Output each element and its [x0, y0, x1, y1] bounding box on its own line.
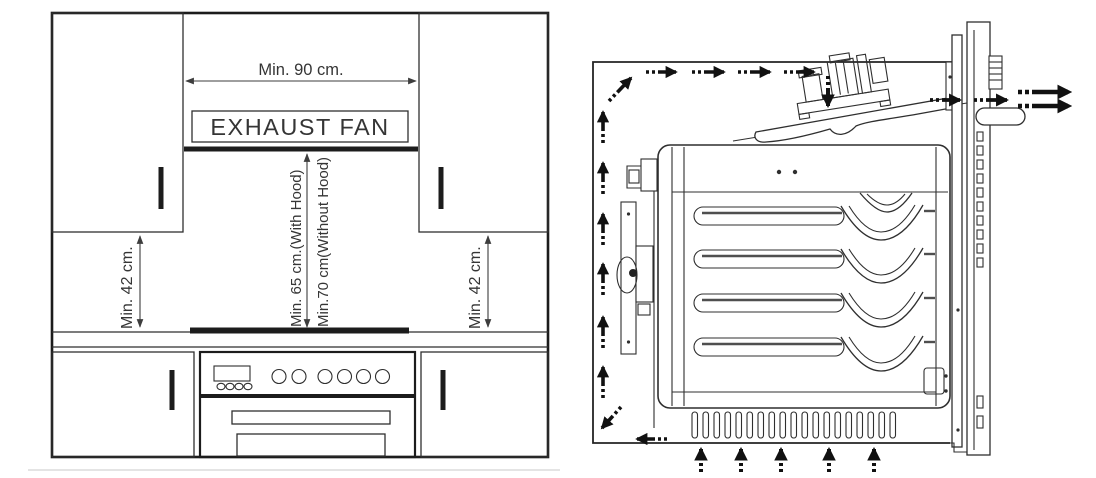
clearance-dimension-left: Min. 42 cm.: [119, 236, 140, 329]
oven-window: [237, 434, 385, 456]
oven-handle: [232, 411, 390, 424]
oven-airflow-diagram: [593, 22, 1070, 472]
clearance-dimension-right: Min. 42 cm.: [467, 236, 488, 329]
base-cabinet-left: [52, 352, 194, 457]
screw-dot-icon: [944, 374, 947, 377]
range-cooker: [200, 352, 415, 457]
display-buttons: [217, 383, 252, 389]
screw-dot-icon: [777, 170, 781, 174]
upper-cabinet-right: [419, 13, 548, 232]
exhaust-fan: EXHAUST FAN: [184, 111, 418, 149]
height-dimension: Min. 65 cm.(With Hood) Min.70 cm(Without…: [288, 154, 332, 327]
control-knobs: [272, 370, 390, 384]
base-cabinet-right: [421, 352, 548, 457]
left-clearance-label: Min. 42 cm.: [119, 246, 136, 329]
figure-svg: Min. 90 cm. EXHAUST FAN Min. 65 cm.(With…: [0, 0, 1096, 478]
without-hood-label: Min.70 cm(Without Hood): [315, 157, 332, 327]
screw-dot-icon: [948, 75, 951, 78]
width-dimension-label: Min. 90 cm.: [258, 61, 343, 79]
upper-cabinet-left: [52, 13, 183, 232]
left-hinge-hardware: [617, 159, 657, 428]
airflow-arrow-up-right: [609, 78, 631, 101]
display-icon: [214, 366, 250, 381]
screw-dot-icon: [956, 428, 959, 431]
screw-dot-icon: [793, 170, 797, 174]
exhaust-fan-label: EXHAUST FAN: [210, 114, 389, 140]
screw-dot-icon: [956, 308, 959, 311]
door-assembly: [946, 22, 1025, 455]
intake-slots: [692, 412, 896, 438]
fan-motor: [791, 48, 892, 120]
airflow-arrow-down-left: [602, 407, 621, 428]
installation-clearance-diagram: Min. 90 cm. EXHAUST FAN Min. 65 cm.(With…: [28, 13, 560, 470]
door-back-panel: [952, 35, 962, 447]
with-hood-label: Min. 65 cm.(With Hood): [288, 169, 305, 327]
width-dimension: Min. 90 cm.: [186, 61, 416, 81]
manual-figure: Min. 90 cm. EXHAUST FAN Min. 65 cm.(With…: [0, 0, 1096, 478]
oven-body: [658, 145, 950, 408]
door-handle: [976, 108, 1025, 125]
countertop: [52, 331, 548, 348]
screw-dot-icon: [944, 389, 947, 392]
control-knob: [989, 56, 1002, 89]
right-clearance-label: Min. 42 cm.: [467, 246, 484, 329]
airflow-arrows-bottom: [602, 407, 874, 472]
